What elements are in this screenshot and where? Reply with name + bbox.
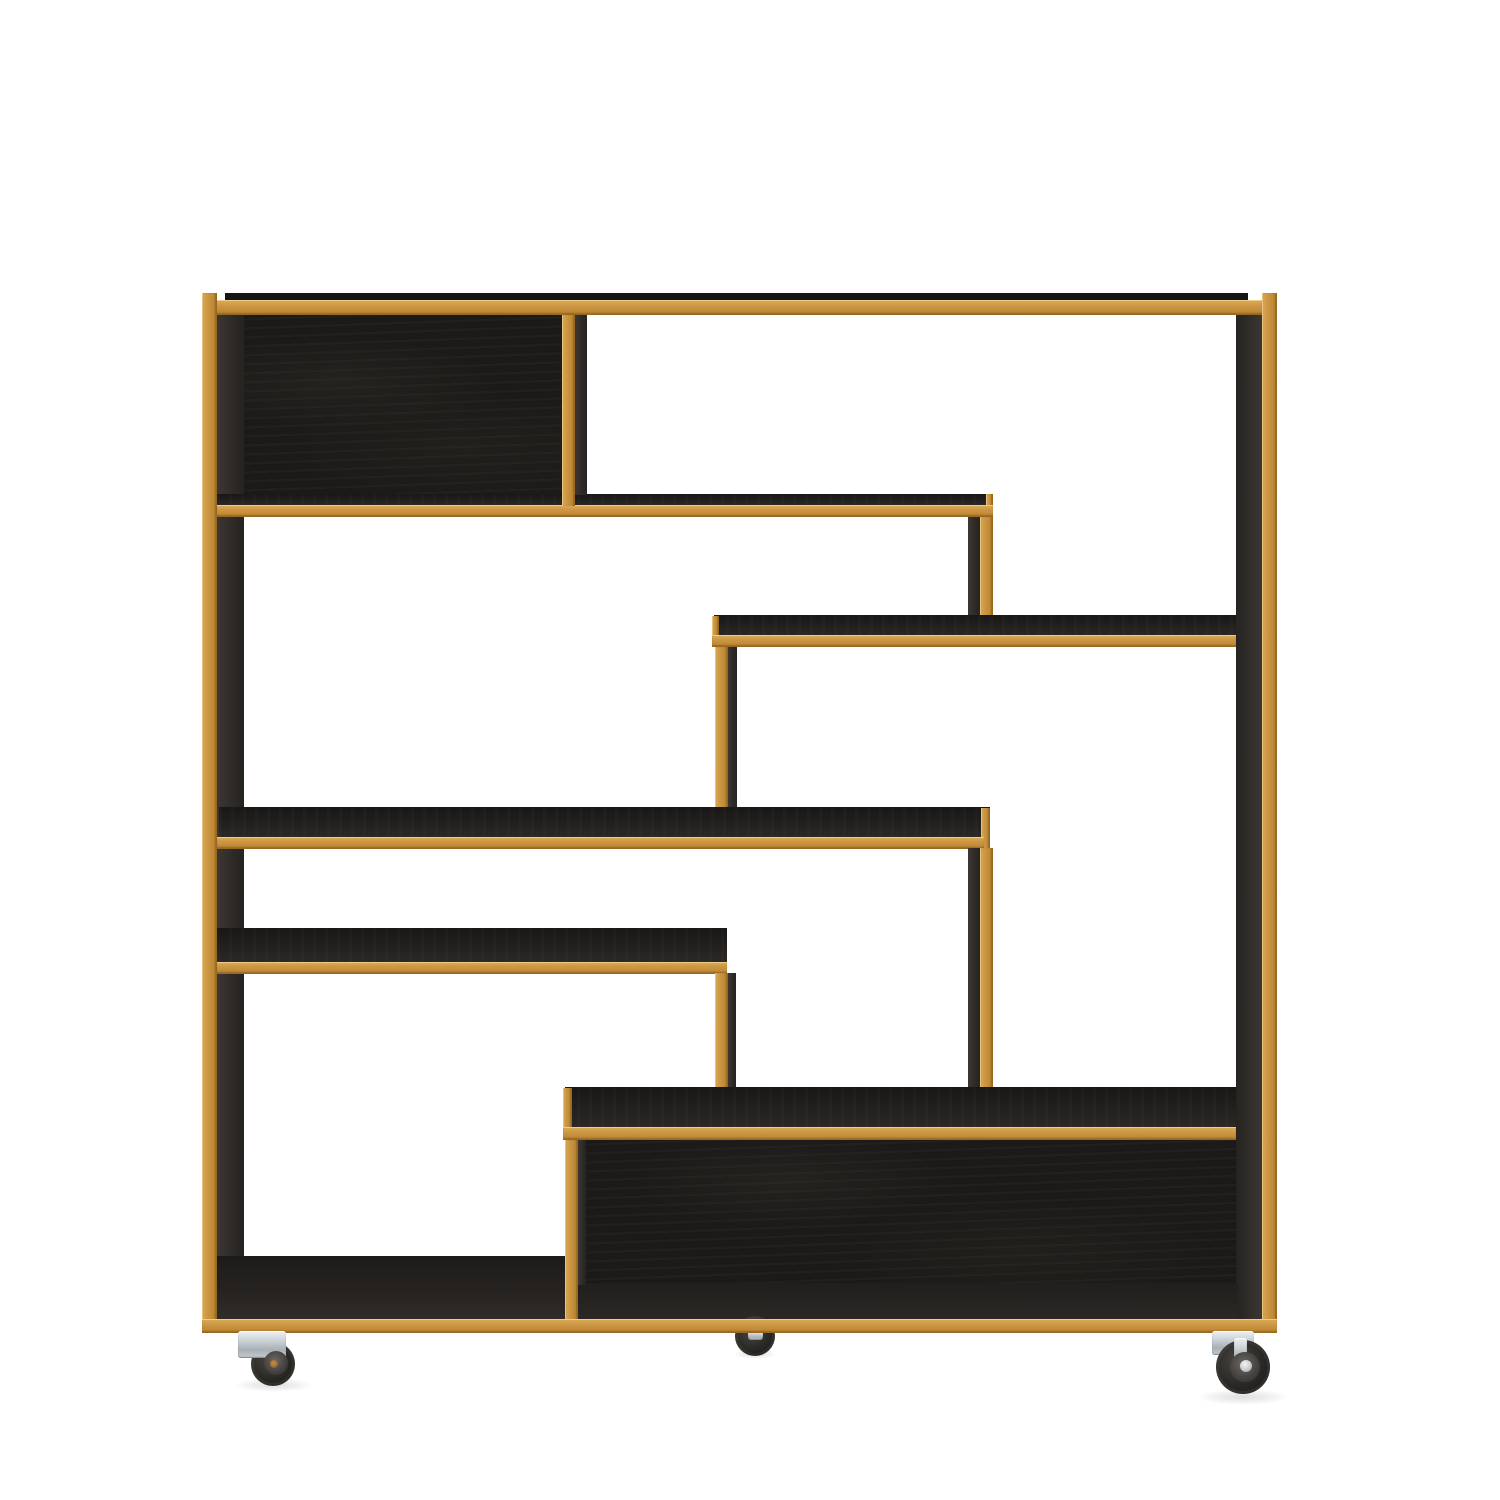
right-panel-inner-face xyxy=(1236,300,1262,1326)
divider-bottom-left-side-face xyxy=(578,1140,586,1285)
divider-lower-middle-side-face xyxy=(968,848,980,1088)
divider-top-left-oak-edge xyxy=(562,315,575,506)
left-panel-oak-edge xyxy=(202,293,217,1333)
bottom-shelf-oak-edge xyxy=(563,1127,1236,1140)
divider-lower-middle-oak-edge xyxy=(980,848,993,1128)
shelf-2-top-surface xyxy=(714,615,1236,636)
right-panel-oak-edge xyxy=(1262,293,1277,1333)
shelf-3-top-surface xyxy=(219,807,990,838)
divider-top-left-side-face xyxy=(575,315,587,495)
shelf-2-oak-edge xyxy=(712,635,1236,647)
bottom-floor-left xyxy=(217,1256,578,1322)
shelf-1-oak-edge xyxy=(217,505,993,517)
top-frame-oak-edge xyxy=(202,300,1277,315)
bottom-shelf-top-surface xyxy=(565,1087,1236,1128)
shelf-3-oak-edge xyxy=(217,837,984,849)
middle-caster-shadow xyxy=(733,1349,777,1359)
shelf-4-oak-edge xyxy=(217,962,727,974)
left-caster-bolt xyxy=(270,1360,278,1368)
divider-middle-left-side-face xyxy=(728,647,737,808)
product-photo-bookshelf xyxy=(0,0,1500,1500)
bottom-frame-oak-edge xyxy=(202,1319,1277,1333)
back-panel-top-left xyxy=(228,301,575,517)
divider-upper-middle-side-face xyxy=(968,517,980,616)
divider-left-lower-side-face xyxy=(728,973,736,1088)
right-caster-axle-cap xyxy=(1240,1360,1252,1372)
page: { "scene": { "description": "Studio prod… xyxy=(0,0,1500,1500)
bottom-floor-inner xyxy=(572,1283,1238,1321)
divider-bottom-left-oak-edge xyxy=(565,1140,578,1320)
shelf-2-end-cap xyxy=(712,616,719,636)
shelf-4-top-surface xyxy=(217,928,727,963)
